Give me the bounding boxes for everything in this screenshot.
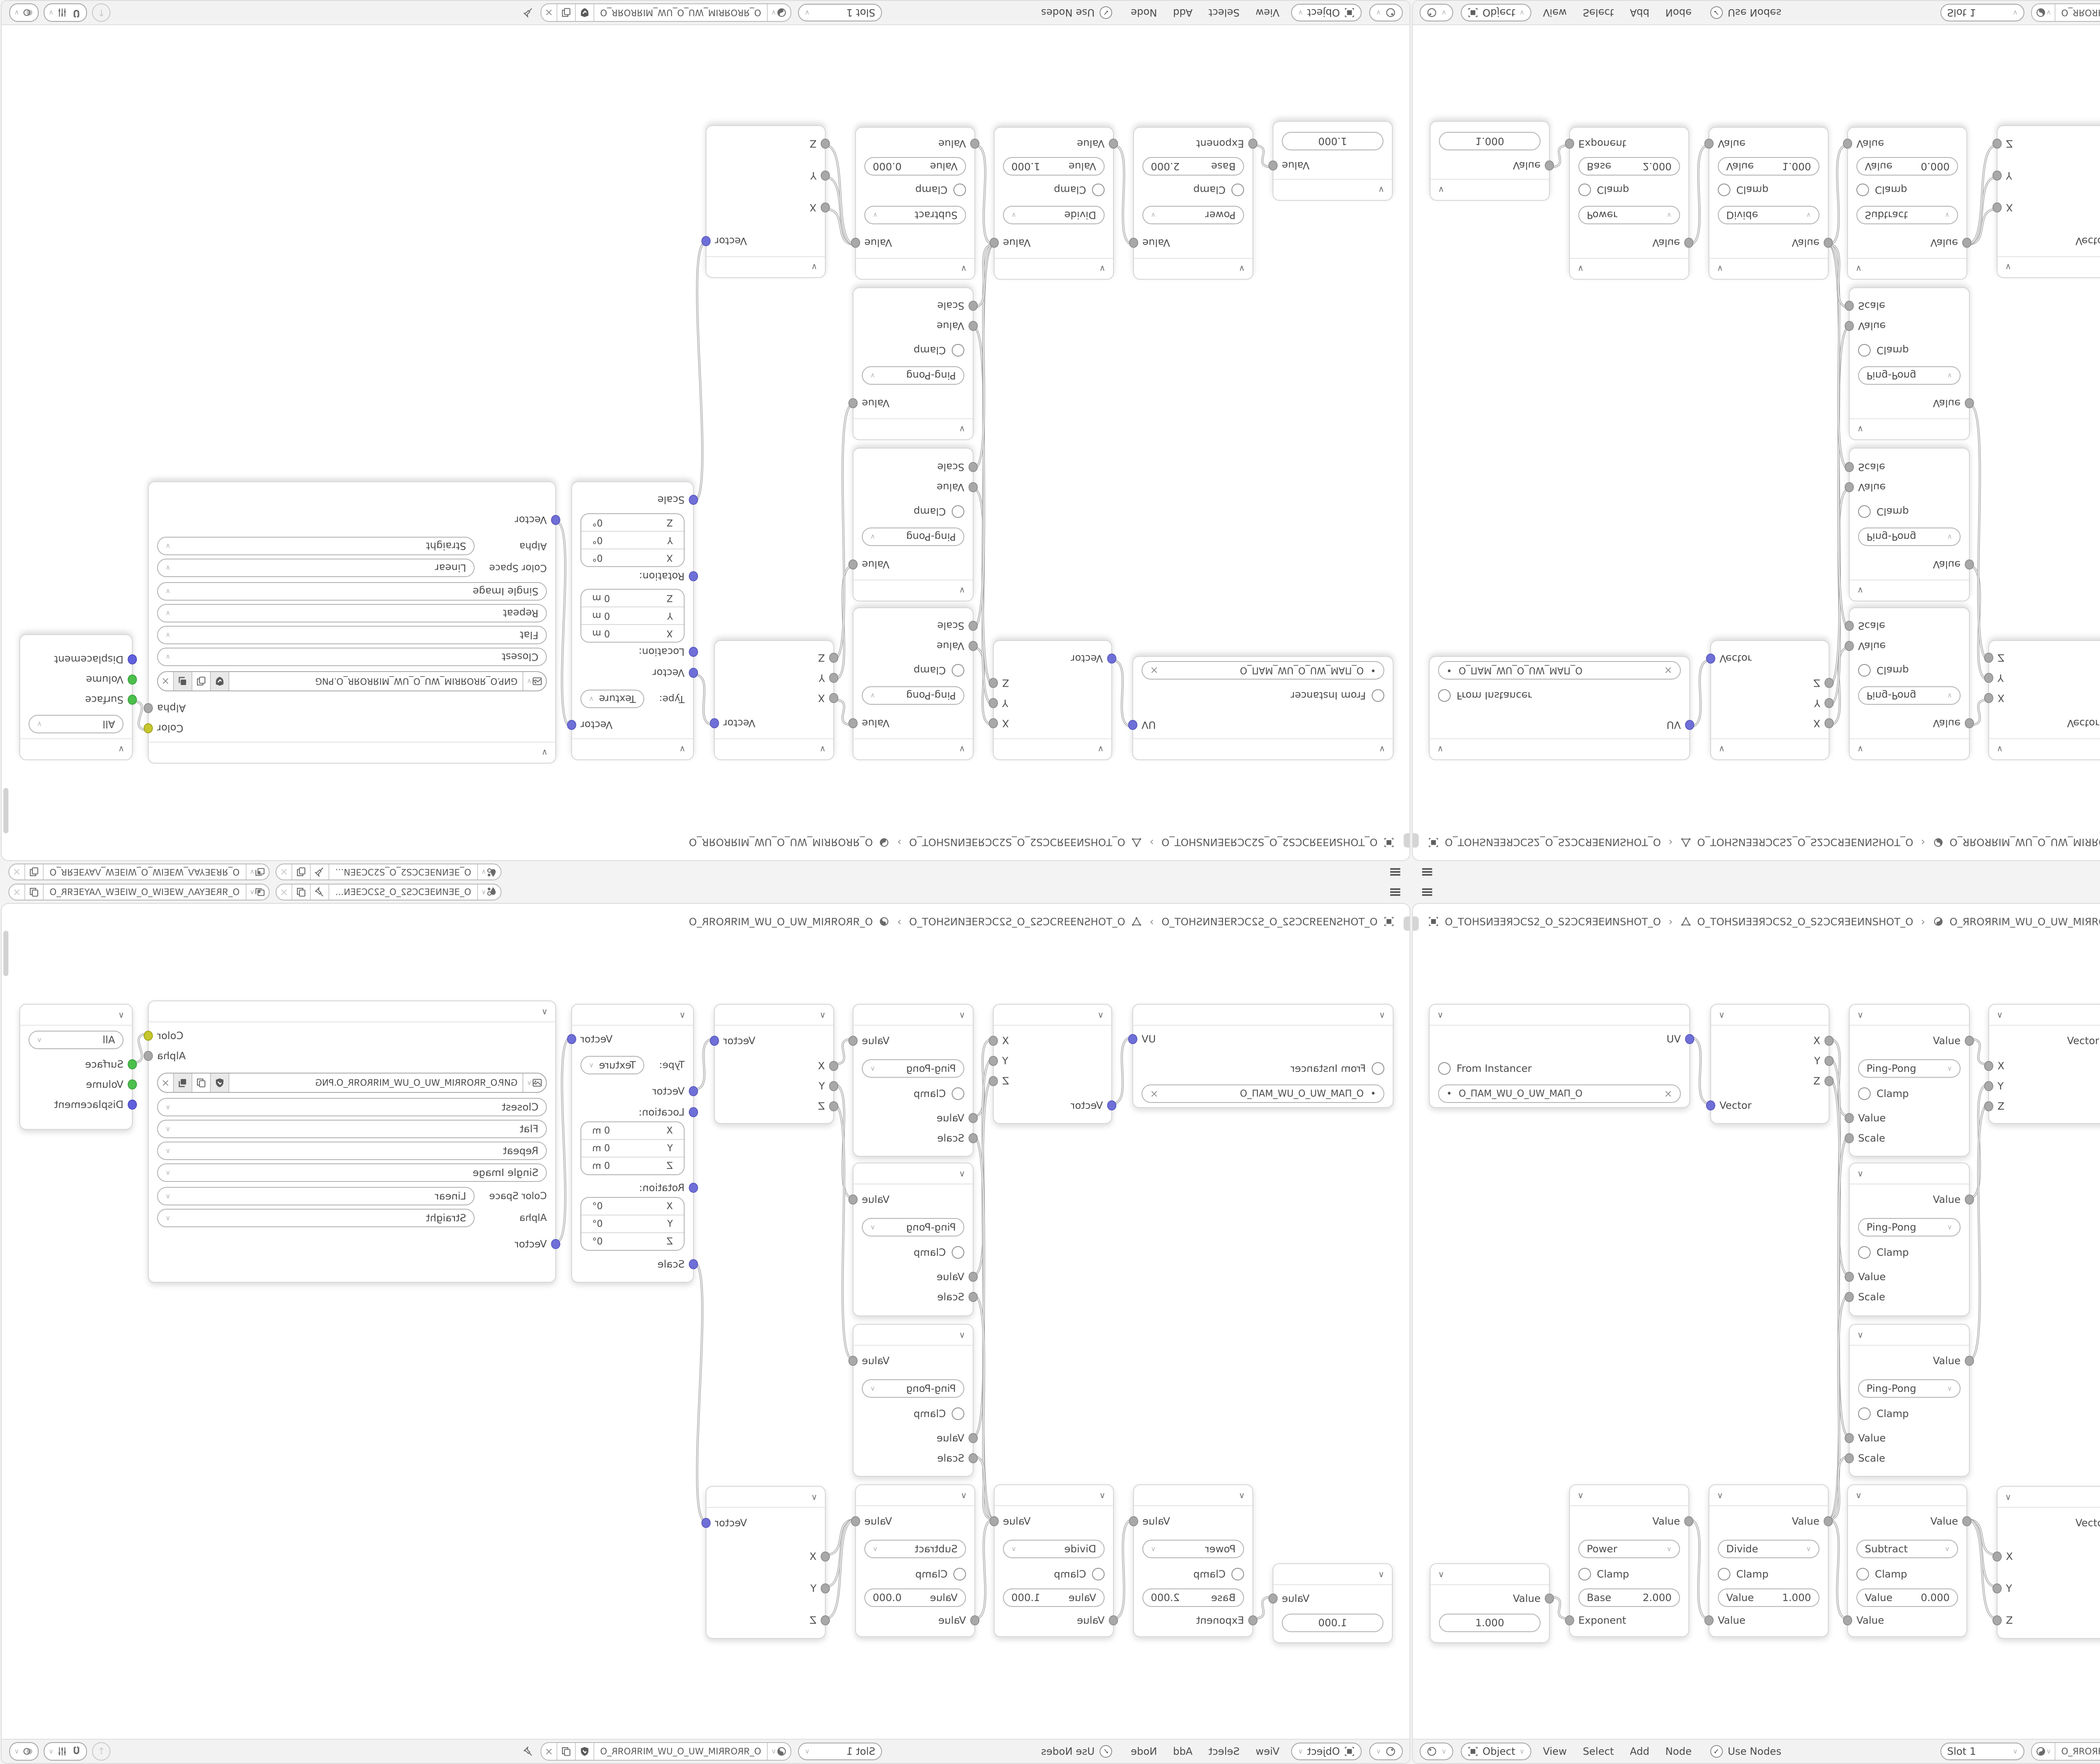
value-input-socket[interactable] [969,1113,978,1123]
value-output-socket[interactable] [848,559,858,570]
math-pingpong-node[interactable]: ∨ValuePing-Pong∨ClampValueScale [1849,1324,1970,1477]
value-output-socket[interactable] [851,1516,860,1526]
checkbox-clamp[interactable] [1856,1568,1869,1580]
math-subtract-node[interactable]: ∨ValueSubtract∨ClampValue0.000Value [855,127,975,280]
value-output-socket[interactable] [990,1516,999,1526]
menu-view[interactable]: View [1255,7,1279,18]
scale-input-socket[interactable] [969,1133,978,1143]
pack-icon[interactable] [173,672,192,690]
node-header[interactable]: ∨ [1133,1005,1393,1026]
node-header[interactable]: ∨ [994,1005,1111,1026]
vector-output-socket[interactable] [701,1518,711,1528]
combine-xyz-node[interactable]: ∨VectorXYZ [1997,1486,2100,1639]
breadcrumb-object[interactable]: O_TOHSИƎƎЯƆCS2_O_S2ƆCЯƎEИNSHOT_O [1162,836,1394,848]
node-header[interactable]: ∨ [995,258,1113,279]
uv-map-node[interactable]: ∨UVFrom Instancer•O_ΠAM_WU_O_UW_MAΠ_O× [1132,656,1394,760]
pin-icon[interactable] [310,864,328,879]
y-input-socket[interactable] [829,673,838,683]
vector-value-group[interactable]: X0 mY0 mZ0 m [580,1121,685,1175]
x-input-socket[interactable] [1984,693,1993,703]
dropdown-single-image[interactable]: Single Image∨ [157,582,547,601]
dropdown-ping-pong[interactable]: Ping-Pong∨ [862,1059,964,1078]
left-scrollbar-tab[interactable] [1404,916,1410,931]
scale-input-socket[interactable] [1845,1133,1854,1143]
math-subtract-node[interactable]: ∨ValueSubtract∨ClampValue0.000Value [1847,1484,1967,1637]
close-icon[interactable]: × [158,672,173,690]
value-input-socket[interactable] [1845,1113,1854,1123]
checkbox-clamp[interactable] [1858,344,1871,357]
slot-dropdown[interactable]: Slot 1∨ [798,1743,882,1760]
value-input-socket[interactable] [1704,139,1714,149]
separate-xyz-node[interactable]: ∨XYZVector [1710,640,1830,760]
value-output-socket[interactable] [1545,160,1554,171]
close-icon[interactable]: × [1150,664,1158,676]
vector-component-field[interactable]: Y0° [581,531,684,549]
value-input-socket[interactable] [1845,641,1854,651]
vector-input-socket[interactable] [1706,654,1715,664]
vector-component-field[interactable]: X0 m [581,624,684,642]
view-layer-selector[interactable]: ∨ O_ЯRƎEYAΛ_WƎEIW_O_WIƎEW_ΛAYƎEЯR_O × [8,864,270,880]
scale-input-socket[interactable] [1845,1453,1854,1463]
value-output-socket[interactable] [848,1356,858,1366]
scale-input-socket[interactable] [1845,1292,1854,1302]
menu-select[interactable]: Select [1583,7,1614,18]
view-layer-icon[interactable]: ∨ [246,885,269,900]
displacement-input-socket[interactable] [128,1100,137,1110]
checkbox-from-instancer[interactable] [1438,1062,1451,1075]
left-scrollbar-tab[interactable] [1404,833,1410,848]
z-output-socket[interactable] [989,1076,998,1086]
exponent-input-socket[interactable] [1248,1615,1257,1625]
combine-xyz-node[interactable]: ∨VectorXYZ [1997,125,2100,278]
checkbox-clamp[interactable] [952,505,964,518]
checkbox-clamp[interactable] [952,344,964,357]
y-input-socket[interactable] [1984,1081,1993,1091]
menu-select[interactable]: Select [1583,1746,1614,1757]
menu-view[interactable]: View [1255,1746,1279,1757]
color-output-socket[interactable] [144,723,153,733]
view-layer-icon[interactable]: ∨ [246,864,269,879]
view-layer-name[interactable]: O_ЯRƎEYAΛ_WƎEIW_O_WIƎEW_ΛAYƎEЯR_O [43,864,245,879]
close-icon[interactable]: × [9,885,24,900]
node-header[interactable]: ∨ [853,1163,973,1184]
y-input-socket[interactable] [821,171,830,181]
combine-xyz-node[interactable]: ∨VectorXYZ [706,1486,826,1639]
menu-add[interactable]: Add [1630,1746,1649,1757]
value-input-socket[interactable] [1843,139,1852,149]
checkbox-clamp[interactable] [952,1246,964,1259]
exponent-input-socket[interactable] [1565,139,1574,149]
node-header[interactable]: ∨ [1850,1163,1969,1184]
material-selector[interactable]: ∨ O_ЯROЯRIM_WU_O_UW_MIЯROЯR_O × [2031,1742,2100,1761]
overlays-dropdown[interactable]: ∨ [9,3,39,22]
value-input-socket[interactable] [1109,139,1118,149]
math-pingpong-node[interactable]: ∨ValuePing-Pong∨ClampValueScale [853,1163,974,1316]
node-header[interactable]: ∨ [1711,738,1829,759]
color-output-socket[interactable] [144,1031,153,1041]
snapping-controls[interactable]: ∨ [44,1742,87,1761]
dropdown-ping-pong[interactable]: Ping-Pong∨ [1858,1059,1961,1078]
dropdown-subtract[interactable]: Subtract∨ [864,206,966,224]
breadcrumb-object[interactable]: O_TOHSИƎƎЯƆCS2_O_S2ƆCЯƎEИNSHOT_O [1428,916,1661,928]
image-icon[interactable]: ∨ [522,1074,546,1092]
value-node[interactable]: ∨Value1.000 [1430,1563,1550,1643]
x-input-socket[interactable] [1992,1551,2002,1562]
vector-component-field[interactable]: X0° [581,549,684,566]
hamburger-menu-icon[interactable] [1420,865,1434,879]
math-pingpong-node[interactable]: ∨ValuePing-Pong∨ClampValueScale [853,607,974,760]
menu-view[interactable]: View [1543,7,1567,18]
checkbox-clamp[interactable] [1718,184,1730,196]
number-field[interactable]: Base2.000 [1142,1588,1244,1607]
checkbox-clamp[interactable] [1858,1407,1871,1420]
node-header[interactable]: ∨ [994,738,1111,759]
checkbox-from-instancer[interactable] [1438,689,1451,702]
hamburger-menu-icon[interactable] [1389,865,1402,879]
close-icon[interactable]: × [158,1074,173,1092]
x-output-socket[interactable] [1824,1036,1834,1046]
material-name[interactable]: O_ЯROЯRIM_WU_O_UW_MIЯROЯR_O [2055,4,2100,21]
dropdown-ping-pong[interactable]: Ping-Pong∨ [862,1379,964,1398]
scale-input-socket[interactable] [1845,301,1854,311]
node-header[interactable]: ∨ [853,738,973,759]
view-layer-name[interactable]: O_ЯRƎEYAΛ_WƎEIW_O_WIƎEW_ΛAYƎEЯR_O [43,885,245,900]
value-input-socket[interactable] [969,321,978,331]
value-input-socket[interactable] [969,641,978,651]
x-output-socket[interactable] [989,718,998,728]
menu-add[interactable]: Add [1173,7,1192,18]
material-icon[interactable]: ∨ [2032,1743,2055,1760]
number-field[interactable]: Base2.000 [1578,157,1680,176]
x-input-socket[interactable] [1992,202,2002,213]
scale-input-socket[interactable] [969,1292,978,1302]
node-header[interactable]: ∨ [853,1005,973,1026]
pin-icon[interactable] [523,7,534,18]
z-input-socket[interactable] [1992,1615,2002,1625]
value-input-socket[interactable] [970,139,979,149]
checkbox-clamp[interactable] [1092,184,1105,196]
x-input-socket[interactable] [829,1061,838,1071]
copy-icon[interactable] [556,1743,575,1760]
checkbox-clamp[interactable] [1092,1568,1105,1580]
scene-selector[interactable]: ∨ O_ƎEИNƎEƆCS2_O_S2ƆCƎEN... × [276,864,501,880]
node-header[interactable]: ∨ [853,418,973,439]
alpha-output-socket[interactable] [144,703,153,713]
value-node[interactable]: ∨Value1.000 [1273,1563,1393,1643]
value-output-socket[interactable] [1129,238,1138,248]
dropdown-all[interactable]: All∨ [29,1031,123,1049]
editor-type-dropdown[interactable]: ∨ [1369,1743,1403,1760]
node-header[interactable]: ∨ [1570,1485,1688,1506]
node-header[interactable]: ∨ [20,1005,132,1026]
copy-icon[interactable] [291,864,310,879]
volume-input-socket[interactable] [128,1079,137,1089]
checkbox-clamp[interactable] [1231,1568,1244,1580]
dropdown-flat[interactable]: Flat∨ [157,626,547,644]
value-output-socket[interactable] [1962,1516,1971,1526]
x-output-socket[interactable] [989,1036,998,1046]
value-input-socket[interactable] [970,1615,979,1625]
node-header[interactable]: ∨ [1848,258,1966,279]
node-header[interactable]: ∨ [1998,1487,2100,1508]
dropdown-texture[interactable]: Texture∨ [580,1056,644,1074]
node-header[interactable]: ∨ [995,1485,1113,1506]
arrow-up-icon[interactable]: ↑ [92,1742,110,1761]
dropdown-divide[interactable]: Divide∨ [1003,1540,1105,1558]
vector-output-socket[interactable] [710,1036,719,1046]
node-header[interactable]: ∨ [1709,1485,1828,1506]
node-header[interactable]: ∨ [1850,418,1969,439]
value-output-socket[interactable] [1965,559,1974,570]
z-output-socket[interactable] [1824,678,1834,688]
checkbox-clamp[interactable] [953,184,966,196]
vector-value-group[interactable]: X0°Y0°Z0° [580,513,685,567]
math-pingpong-node[interactable]: ∨ValuePing-Pong∨ClampValueScale [1849,287,1970,440]
shader-context-dropdown[interactable]: Object ∨ [1291,4,1362,21]
exponent-input-socket[interactable] [1565,1615,1574,1625]
dropdown-ping-pong[interactable]: Ping-Pong∨ [1858,1218,1961,1236]
arrow-up-icon[interactable]: ↑ [92,3,110,22]
number-field[interactable]: Value1.000 [1718,1588,1819,1607]
value-input-socket[interactable] [969,1272,978,1282]
close-icon[interactable]: × [1664,664,1672,676]
menu-select[interactable]: Select [1208,7,1239,18]
number-field[interactable]: Value0.000 [1856,157,1958,176]
uv-map-node[interactable]: ∨UVFrom Instancer•O_ΠAM_WU_O_UW_MAΠ_O× [1429,656,1690,760]
y-input-socket[interactable] [1992,171,2002,181]
uv-map-field[interactable]: •O_ΠAM_WU_O_UW_MAΠ_O× [1142,661,1384,680]
node-header[interactable]: ∨ [1998,256,2100,277]
dropdown-divide[interactable]: Divide∨ [1718,1540,1819,1558]
use-nodes-checkbox[interactable]: ✓ Use Nodes [1710,1745,1782,1758]
location-input-socket[interactable] [689,647,698,657]
checkbox-clamp[interactable] [952,1087,964,1100]
checkbox-clamp[interactable] [1858,505,1871,518]
math-power-node[interactable]: ∨ValuePower∨ClampBase2.000Exponent [1569,1484,1689,1637]
vertical-scrollbar[interactable] [3,931,8,976]
value-input-socket[interactable] [1845,321,1854,331]
image-texture-node[interactable]: ∨ColorAlpha∨GИP.O_ЯROЯRIM_WU_O_UW_MIЯROЯ… [148,1000,556,1283]
editor-type-dropdown[interactable]: ∨ [1420,1743,1453,1760]
dropdown-flat[interactable]: Flat∨ [157,1120,547,1138]
node-header[interactable]: ∨ [1431,1564,1549,1585]
use-nodes-checkbox[interactable]: ✓ Use Nodes [1041,1745,1113,1758]
checkbox-clamp[interactable] [1858,664,1871,677]
vertical-scrollbar[interactable] [3,788,8,833]
shield-check-icon[interactable] [575,1743,593,1760]
node-header[interactable]: ∨ [1850,580,1969,601]
dropdown-divide[interactable]: Divide∨ [1718,206,1819,224]
z-input-socket[interactable] [821,1615,830,1625]
value-output-socket[interactable] [1965,1194,1974,1205]
close-icon[interactable]: × [1664,1088,1672,1100]
displacement-input-socket[interactable] [128,654,137,664]
separate-xyz-node[interactable]: ∨XYZVector [993,640,1112,760]
copy-icon[interactable] [192,1074,210,1092]
copy-icon[interactable] [24,864,43,879]
node-header[interactable]: ∨ [572,738,693,759]
dropdown-subtract[interactable]: Subtract∨ [1856,1540,1958,1558]
node-header[interactable]: ∨ [1848,1485,1966,1506]
dropdown-linear[interactable]: Linear∨ [157,1187,475,1205]
math-power-node[interactable]: ∨ValuePower∨ClampBase2.000Exponent [1133,127,1253,280]
close-icon[interactable]: × [9,864,24,879]
math-pingpong-node[interactable]: ∨ValuePing-Pong∨ClampValueScale [1849,1004,1970,1157]
shader-context-dropdown[interactable]: Object ∨ [1291,1743,1362,1760]
math-pingpong-node[interactable]: ∨ValuePing-Pong∨ClampValueScale [1849,1163,1970,1316]
material-icon[interactable]: ∨ [767,4,790,21]
number-field[interactable]: 1.000 [1439,1614,1541,1632]
z-input-socket[interactable] [1984,653,1993,663]
dropdown-straight[interactable]: Straight∨ [157,537,475,555]
breadcrumb-mesh[interactable]: O_TOHSИƎƎЯƆCS2_O_S2ƆCЯƎEИNSHOT_O [909,836,1142,848]
node-header[interactable]: ∨ [1709,258,1828,279]
dropdown-linear[interactable]: Linear∨ [157,559,475,577]
scene-icon[interactable]: ∨ [477,885,501,900]
breadcrumb-material[interactable]: O_ЯROЯRIM_WU_O_UW_MIЯROЯR_O [689,916,890,928]
menu-node[interactable]: Node [1665,7,1692,18]
value-input-socket[interactable] [1704,1615,1714,1625]
y-input-socket[interactable] [829,1081,838,1091]
shield-check-icon[interactable] [210,672,228,690]
combine-xyz-node[interactable]: ∨VectorXYZ [1988,640,2100,760]
vector-output-socket[interactable] [701,236,711,246]
value-output-socket[interactable] [1684,238,1693,248]
menu-add[interactable]: Add [1630,7,1649,18]
menu-node[interactable]: Node [1131,1746,1157,1757]
z-input-socket[interactable] [829,1101,838,1111]
value-output-socket[interactable] [1962,238,1971,248]
value-input-socket[interactable] [1109,1615,1118,1625]
math-pingpong-node[interactable]: ∨ValuePing-Pong∨ClampValueScale [853,287,974,440]
scale-input-socket[interactable] [969,1453,978,1463]
value-input-socket[interactable] [1845,482,1854,492]
uv-output-socket[interactable] [1685,720,1694,730]
scale-input-socket[interactable] [689,495,698,505]
shader-context-dropdown[interactable]: Object ∨ [1461,1743,1531,1760]
y-output-socket[interactable] [1824,1056,1834,1066]
combine-xyz-node[interactable]: ∨VectorXYZ [714,640,834,760]
exponent-input-socket[interactable] [1248,139,1257,149]
material-selector[interactable]: ∨ O_ЯROЯRIM_WU_O_UW_MIЯROЯR_O × [541,1742,791,1761]
mapping-node[interactable]: ∨VectorType:Texture∨VectorLocation:X0 mY… [571,481,694,760]
image-icon[interactable]: ∨ [522,672,546,690]
math-pingpong-node[interactable]: ∨ValuePing-Pong∨ClampValueScale [853,1324,974,1477]
checkbox-clamp[interactable] [1718,1568,1730,1580]
uv-output-socket[interactable] [1128,1034,1137,1044]
value-output-socket[interactable] [990,238,999,248]
dropdown-texture[interactable]: Texture∨ [580,690,644,708]
z-output-socket[interactable] [989,678,998,688]
vector-input-socket[interactable] [689,668,698,678]
x-input-socket[interactable] [1984,1061,1993,1071]
y-output-socket[interactable] [1824,698,1834,708]
number-field[interactable]: Value1.000 [1003,1588,1105,1607]
shader-context-dropdown[interactable]: Object ∨ [1461,4,1531,21]
material-name[interactable]: O_ЯROЯRIM_WU_O_UW_MIЯROЯR_O [593,4,767,21]
checkbox-clamp[interactable] [952,664,964,677]
dropdown-closest[interactable]: Closest∨ [157,648,547,666]
node-header[interactable]: ∨ [856,258,974,279]
node-header[interactable]: ∨ [1273,1564,1392,1585]
material-output-node[interactable]: ∨All∨SurfaceVolumeDisplacement [19,634,133,760]
value-output-socket[interactable] [848,718,858,728]
breadcrumb-object[interactable]: O_TOHSИƎƎЯƆCS2_O_S2ƆCЯƎEИNSHOT_O [1428,836,1661,848]
close-icon[interactable]: × [541,4,556,21]
dropdown-ping-pong[interactable]: Ping-Pong∨ [1858,686,1961,705]
mapping-node[interactable]: ∨VectorType:Texture∨VectorLocation:X0 mY… [571,1004,694,1283]
separate-xyz-node[interactable]: ∨XYZVector [993,1004,1112,1124]
y-input-socket[interactable] [1992,1583,2002,1593]
scale-input-socket[interactable] [969,621,978,631]
material-name[interactable]: O_ЯROЯRIM_WU_O_UW_MIЯROЯR_O [2055,1743,2100,1760]
value-input-socket[interactable] [969,1433,978,1443]
pin-icon[interactable] [310,885,328,900]
dropdown-power[interactable]: Power∨ [1578,206,1680,224]
image-name[interactable]: GИP.O_ЯROЯRIM_WU_O_UW_MIЯROЯR_O.PNG [228,1074,522,1092]
breadcrumb-mesh[interactable]: O_TOHSИƎƎЯƆCS2_O_S2ƆCЯƎEИNSHOT_O [909,916,1142,928]
vector-output-socket[interactable] [567,1034,576,1044]
checkbox-from-instancer[interactable] [1372,689,1384,702]
value-output-socket[interactable] [851,238,860,248]
slot-dropdown[interactable]: Slot 1∨ [1940,4,2024,21]
dropdown-repeat[interactable]: Repeat∨ [157,604,547,622]
node-header[interactable]: ∨ [1850,1325,1969,1346]
number-field[interactable]: Base2.000 [1142,157,1244,176]
number-field[interactable]: Value0.000 [1856,1588,1958,1607]
y-output-socket[interactable] [989,1056,998,1066]
y-input-socket[interactable] [821,1583,830,1593]
node-header[interactable]: ∨ [1134,1485,1252,1506]
pin-icon[interactable] [523,1746,534,1757]
hamburger-menu-icon[interactable] [1420,885,1434,899]
dropdown-power[interactable]: Power∨ [1142,206,1244,224]
math-pingpong-node[interactable]: ∨ValuePing-Pong∨ClampValueScale [1849,448,1970,601]
menu-node[interactable]: Node [1131,7,1157,18]
menu-add[interactable]: Add [1173,1746,1192,1757]
value-input-socket[interactable] [1845,1433,1854,1443]
z-input-socket[interactable] [829,653,838,663]
number-field[interactable]: 1.000 [1439,132,1541,150]
node-header[interactable]: ∨ [1430,738,1689,759]
uv-output-socket[interactable] [1128,720,1137,730]
image-name[interactable]: GИP.O_ЯROЯRIM_WU_O_UW_MIЯROЯR_O.PNG [228,672,522,690]
alpha-output-socket[interactable] [144,1051,153,1061]
shield-check-icon[interactable] [210,1074,228,1092]
value-output-socket[interactable] [1545,1593,1554,1604]
value-output-socket[interactable] [1965,398,1974,408]
math-divide-node[interactable]: ∨ValueDivide∨ClampValue1.000Value [994,127,1114,280]
vector-component-field[interactable]: X0° [581,1198,684,1215]
uv-map-field[interactable]: •O_ΠAM_WU_O_UW_MAΠ_O× [1142,1084,1384,1103]
vector-component-field[interactable]: Z0 m [581,1158,684,1174]
node-header[interactable]: ∨ [572,1005,693,1026]
node-header[interactable]: ∨ [1850,1005,1969,1026]
node-header[interactable]: ∨ [20,738,132,759]
dropdown-closest[interactable]: Closest∨ [157,1098,547,1116]
node-header[interactable]: ∨ [856,1485,974,1506]
value-output-socket[interactable] [848,398,858,408]
dropdown-all[interactable]: All∨ [29,715,123,733]
value-output-socket[interactable] [1129,1516,1138,1526]
vector-input-socket[interactable] [689,1086,698,1096]
volume-input-socket[interactable] [128,675,137,685]
left-scrollbar-tab[interactable] [1413,916,1419,931]
value-output-socket[interactable] [848,1194,858,1205]
close-icon[interactable]: × [541,1743,556,1760]
node-header[interactable]: ∨ [149,1001,555,1022]
node-header[interactable]: ∨ [1430,1005,1689,1026]
